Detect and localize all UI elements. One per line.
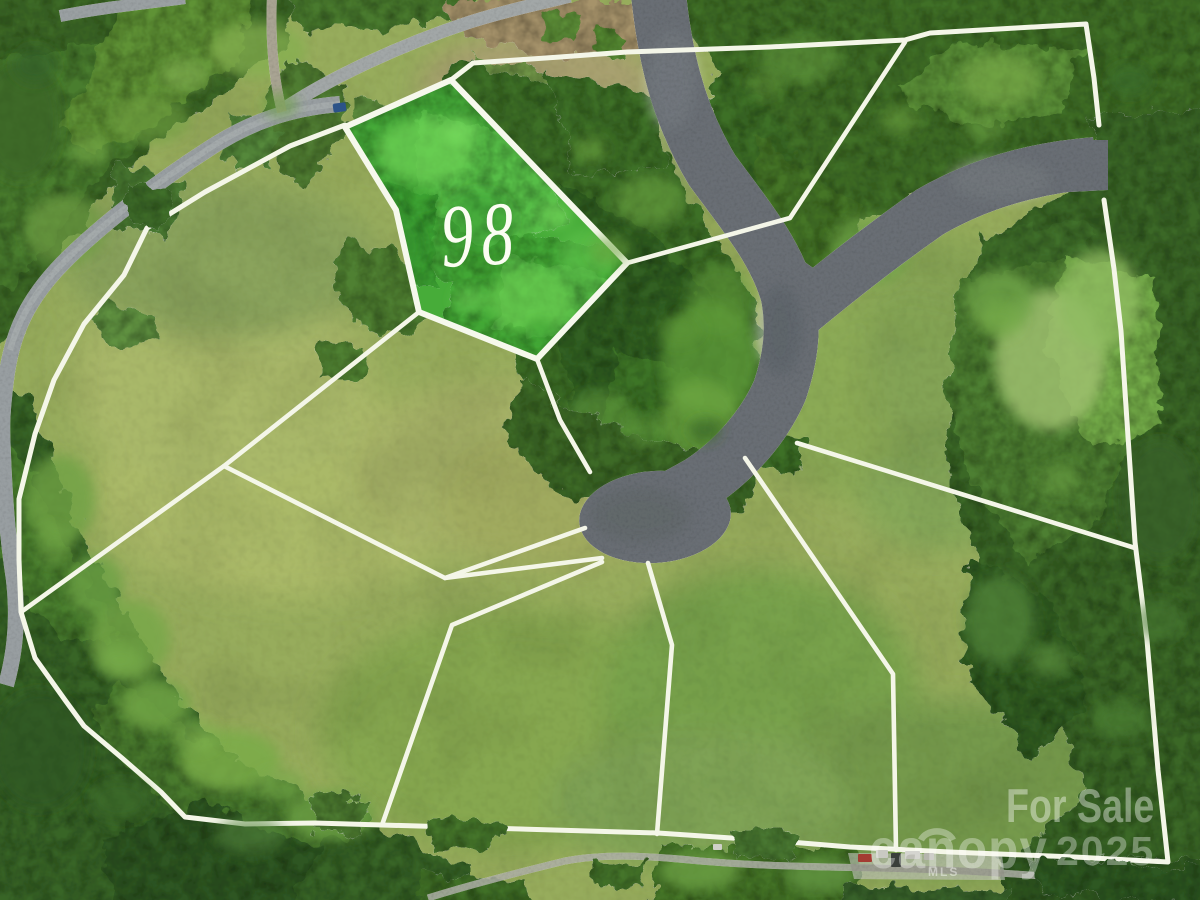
svg-text:MLS: MLS: [928, 865, 959, 879]
svg-text:2025: 2025: [1056, 828, 1155, 874]
svg-text:98: 98: [438, 182, 524, 286]
